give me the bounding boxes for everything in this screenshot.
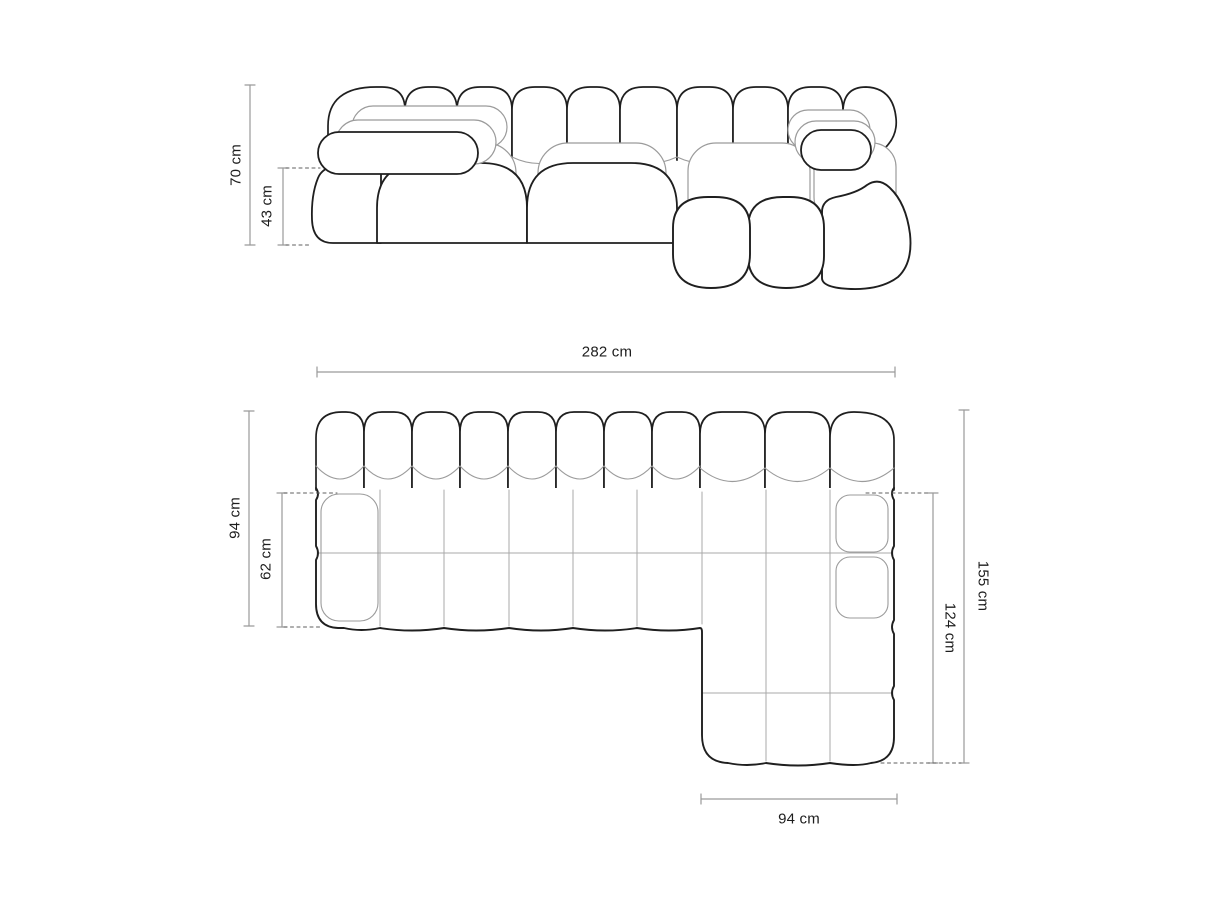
plan-view-drawing	[316, 412, 894, 766]
plan-back-cushions	[316, 412, 894, 490]
front-seats	[377, 163, 700, 243]
front-height-dim-line	[245, 85, 255, 245]
dim-label-plan-chaise-width: 94 cm	[778, 812, 820, 827]
plan-depth-left-dim-line	[244, 411, 254, 626]
dim-label-plan-chaise-depth: 124 cm	[943, 603, 958, 653]
sofa-dimension-diagram: 70 cm 43 cm 282 cm 94 cm 62 cm 155 cm 12…	[0, 0, 1214, 911]
plan-chaise-depth-dim-line	[928, 493, 938, 763]
plan-chaise-width-dim-line	[701, 794, 897, 804]
front-left-base	[312, 165, 381, 244]
front-seat-height-dim-line	[278, 168, 288, 245]
front-chaise	[673, 182, 911, 289]
plan-width-dim-line	[317, 367, 895, 377]
dim-label-plan-seat-depth: 62 cm	[259, 538, 274, 580]
plan-depth-right-dim-line	[959, 410, 969, 763]
dim-label-plan-depth-right: 155 cm	[976, 561, 991, 611]
diagram-drawing	[0, 0, 1214, 911]
plan-chaise-area	[703, 620, 893, 762]
plan-seat-depth-dim-line	[277, 493, 287, 627]
dim-label-plan-depth-left: 94 cm	[228, 497, 243, 539]
plan-seat-area	[317, 488, 893, 627]
dim-label-front-seat-height: 43 cm	[260, 185, 275, 227]
dim-label-front-height: 70 cm	[229, 144, 244, 186]
front-view-drawing	[312, 87, 911, 289]
front-view-dimensions	[245, 85, 320, 245]
dim-label-plan-width: 282 cm	[582, 345, 632, 360]
